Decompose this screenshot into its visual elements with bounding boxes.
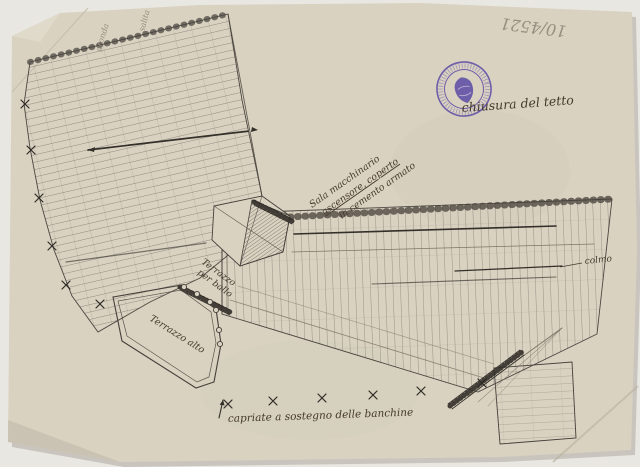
scanned-roof-plan-photo: gronda salita Sala macchinario ascensore… [0,0,640,467]
